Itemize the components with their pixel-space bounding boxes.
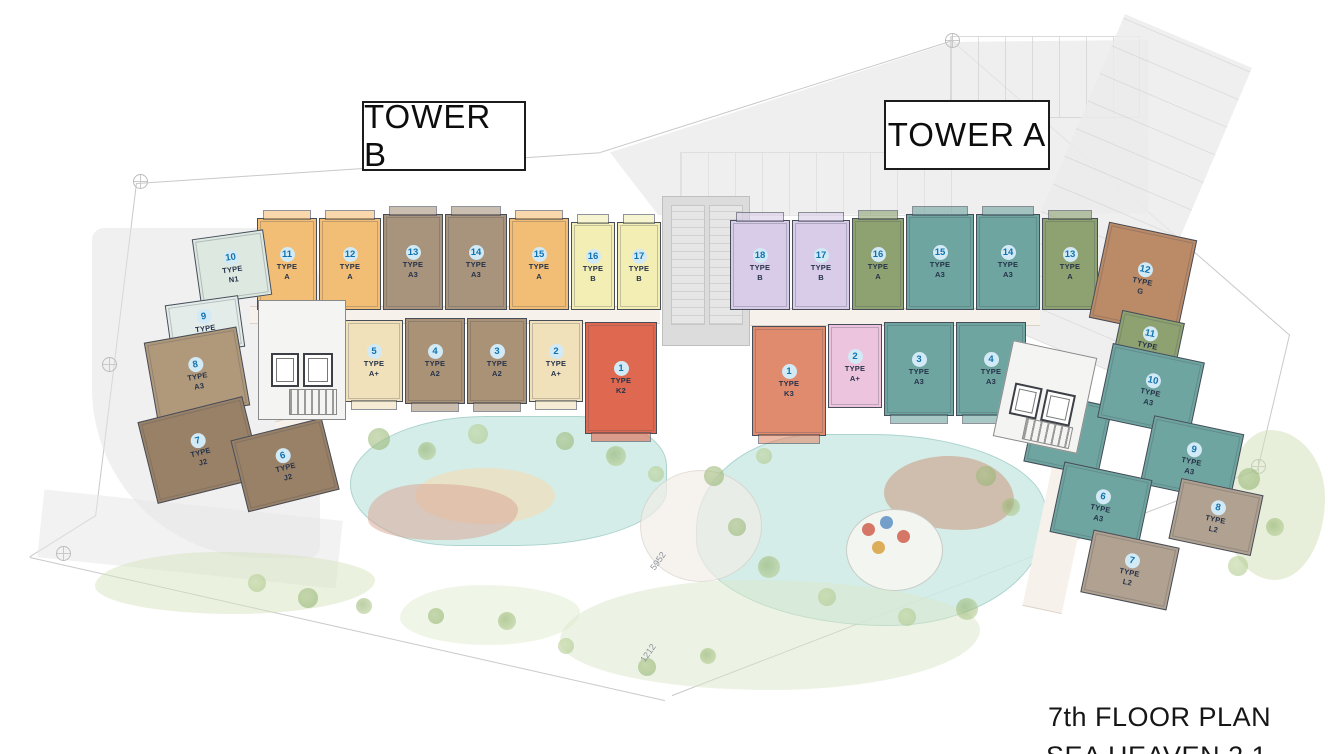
unit-a18: 18 TYPE B (730, 220, 790, 310)
tower-b-label: TOWER B (362, 101, 526, 171)
unit-type-code: A (1067, 273, 1073, 282)
unit-type-code: A3 (471, 271, 481, 280)
tree-icon (728, 518, 746, 536)
unit-type-code: A3 (914, 378, 924, 387)
unit-type-word: TYPE (583, 265, 603, 274)
unit-type-word: TYPE (611, 377, 631, 386)
unit-b17: 17 TYPE B (617, 222, 661, 310)
tree-icon (468, 424, 488, 444)
ramp-panel (671, 205, 705, 325)
unit-type-code: A3 (1184, 466, 1196, 476)
tree-icon (558, 638, 574, 654)
unit-a1: 1 TYPE K3 (752, 326, 826, 436)
unit-type-word: TYPE (998, 261, 1018, 270)
unit-a2: 2 TYPE A+ (828, 324, 882, 408)
unit-type-code: A+ (850, 375, 860, 384)
unit-b4: 4 TYPE A2 (405, 318, 465, 404)
floor-plan-canvas: 5952 1212 11 TYPE A 12 TYPE A 13 TYPE A3… (0, 0, 1342, 754)
unit-type-code: K3 (784, 390, 794, 399)
tower-b-core (258, 300, 346, 420)
unit-type-code: A+ (369, 370, 379, 379)
tree-icon (956, 598, 978, 620)
unit-type-code: A (875, 273, 881, 282)
tree-icon (976, 466, 996, 486)
unit-type-word: TYPE (529, 263, 549, 272)
survey-marker-icon (133, 174, 148, 189)
playground-ball (897, 530, 910, 543)
elevator-shaft (303, 353, 333, 387)
unit-type-code: J2 (283, 472, 294, 482)
tree-icon (418, 442, 436, 460)
tree-icon (1238, 468, 1260, 490)
unit-type-word: TYPE (811, 264, 831, 273)
unit-type-word: TYPE (1060, 263, 1080, 272)
unit-type-code: N1 (228, 275, 239, 285)
unit-type-word: TYPE (487, 360, 507, 369)
unit-number-badge: 16 (871, 247, 886, 262)
tree-icon (248, 574, 266, 592)
tree-icon (1228, 556, 1248, 576)
unit-type-word: TYPE (277, 263, 297, 272)
unit-a17: 17 TYPE B (792, 220, 850, 310)
tower-a-label: TOWER A (884, 100, 1050, 170)
unit-type-code: A (536, 273, 542, 282)
tree-icon (356, 598, 372, 614)
unit-type-code: A3 (935, 271, 945, 280)
tree-icon (818, 588, 836, 606)
survey-marker-icon (56, 546, 71, 561)
elevator-shaft (271, 353, 299, 387)
unit-type-code: A+ (551, 370, 561, 379)
tree-icon (648, 466, 664, 482)
unit-type-word: TYPE (546, 360, 566, 369)
unit-type-word: TYPE (340, 263, 360, 272)
unit-number-badge: 1 (614, 361, 629, 376)
tree-icon (556, 432, 574, 450)
unit-number-badge: 17 (632, 249, 647, 264)
unit-type-code: K2 (616, 387, 626, 396)
unit-type-code: B (818, 274, 824, 283)
unit-type-word: TYPE (364, 360, 384, 369)
unit-number-badge: 13 (1063, 247, 1078, 262)
unit-type-code: A2 (430, 370, 440, 379)
unit-number-badge: 17 (814, 248, 829, 263)
unit-b15: 15 TYPE A (509, 218, 569, 310)
unit-a16: 16 TYPE A (852, 218, 904, 310)
tree-icon (606, 446, 626, 466)
tree-icon (1266, 518, 1284, 536)
kids-pool (846, 509, 943, 591)
unit-type-code: J2 (198, 457, 209, 467)
tree-icon (704, 466, 724, 486)
plan-title-line2: SEA HEAVEN 2.1 (1046, 741, 1267, 754)
playground-ball (872, 541, 885, 554)
tree-icon (298, 588, 318, 608)
stair-hatch (289, 389, 337, 415)
unit-a3: 3 TYPE A3 (884, 322, 954, 416)
unit-number-badge: 2 (549, 344, 564, 359)
unit-number-badge: 18 (753, 248, 768, 263)
survey-marker-icon (945, 33, 960, 48)
unit-type-word: TYPE (466, 261, 486, 270)
tree-icon (368, 428, 390, 450)
tree-icon (758, 556, 780, 578)
unit-a15: 15 TYPE A3 (906, 214, 974, 310)
unit-number-badge: 14 (469, 245, 484, 260)
unit-type-code: L2 (1208, 524, 1219, 534)
survey-marker-icon (102, 357, 117, 372)
unit-number-badge: 3 (912, 352, 927, 367)
unit-a7: 7 TYPE L2 (1080, 530, 1179, 611)
unit-type-code: A3 (986, 378, 996, 387)
unit-type-code: A (284, 273, 290, 282)
unit-number-badge: 13 (406, 245, 421, 260)
unit-b10: 10 TYPE N1 (192, 229, 272, 304)
tree-icon (700, 648, 716, 664)
unit-type-word: TYPE (425, 360, 445, 369)
unit-b1: 1 TYPE K2 (585, 322, 657, 434)
unit-number-badge: 2 (848, 349, 863, 364)
unit-type-word: TYPE (845, 365, 865, 374)
unit-number-badge: 16 (586, 249, 601, 264)
unit-type-word: TYPE (868, 263, 888, 272)
tree-icon (1002, 498, 1020, 516)
elevator-shaft (1009, 383, 1043, 420)
unit-type-code: A3 (1003, 271, 1013, 280)
sun-deck (368, 484, 518, 540)
unit-type-code: A3 (1093, 513, 1105, 523)
unit-a14: 14 TYPE A3 (976, 214, 1040, 310)
unit-number-badge: 14 (1001, 245, 1016, 260)
tree-icon (898, 608, 916, 626)
unit-number-badge: 1 (782, 364, 797, 379)
unit-number-badge: 15 (933, 245, 948, 260)
playground-ball (880, 516, 893, 529)
unit-b14: 14 TYPE A3 (445, 214, 507, 310)
unit-b3: 3 TYPE A2 (467, 318, 527, 404)
unit-b13: 13 TYPE A3 (383, 214, 443, 310)
tree-icon (756, 448, 772, 464)
unit-type-code: A3 (1143, 397, 1155, 407)
unit-type-code: A3 (194, 382, 205, 392)
unit-type-code: G (1137, 287, 1145, 297)
garden-area (95, 552, 375, 614)
unit-type-code: A3 (408, 271, 418, 280)
garden-area (400, 585, 580, 645)
unit-type-word: TYPE (629, 265, 649, 274)
unit-type-word: TYPE (779, 380, 799, 389)
unit-number-badge: 15 (532, 247, 547, 262)
unit-type-code: A2 (492, 370, 502, 379)
unit-number-badge: 3 (490, 344, 505, 359)
unit-type-code: B (757, 274, 763, 283)
unit-type-code: L2 (1122, 577, 1133, 587)
unit-number-badge: 5 (367, 344, 382, 359)
unit-b2: 2 TYPE A+ (529, 320, 583, 402)
tree-icon (498, 612, 516, 630)
unit-type-word: TYPE (750, 264, 770, 273)
unit-a13: 13 TYPE A (1042, 218, 1098, 310)
unit-number-badge: 11 (280, 247, 295, 262)
unit-b12: 12 TYPE A (319, 218, 381, 310)
unit-type-code: A (347, 273, 353, 282)
garden-area (560, 580, 980, 690)
unit-type-code: B (636, 275, 642, 284)
unit-type-word: TYPE (403, 261, 423, 270)
unit-type-code: B (590, 275, 596, 284)
tree-icon (428, 608, 444, 624)
unit-type-word: TYPE (909, 368, 929, 377)
unit-number-badge: 12 (343, 247, 358, 262)
plan-title-line1: 7th FLOOR PLAN (1048, 702, 1271, 733)
unit-type-word: TYPE (981, 368, 1001, 377)
playground-ball (862, 523, 875, 536)
unit-b5: 5 TYPE A+ (345, 320, 403, 402)
unit-number-badge: 4 (984, 352, 999, 367)
unit-type-word: TYPE (930, 261, 950, 270)
unit-b16: 16 TYPE B (571, 222, 615, 310)
unit-number-badge: 4 (428, 344, 443, 359)
